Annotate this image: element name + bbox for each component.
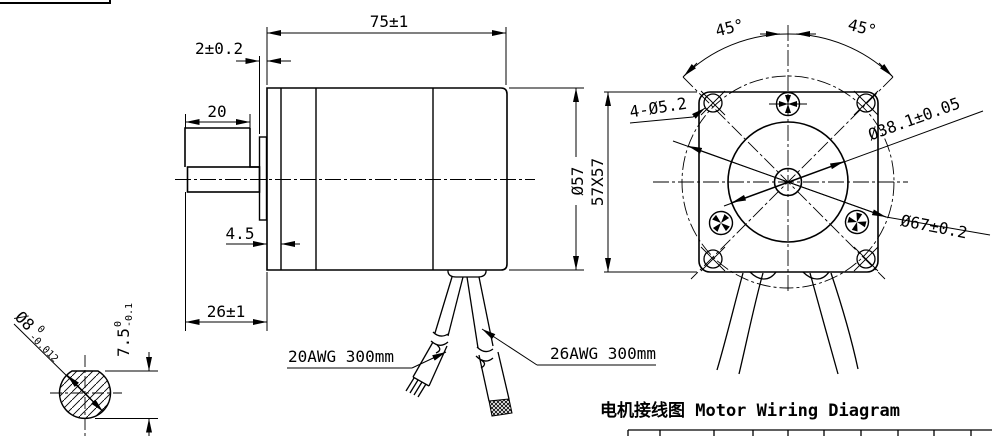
shaft-boss-right (250, 128, 260, 167)
dim-face-size: 57X57 (588, 158, 607, 206)
shaft-boss (185, 128, 250, 167)
dim-mounting-holes: 4-Ø5.2 (628, 94, 688, 122)
motor-body-outline (267, 88, 507, 270)
shaft-diameter-tol-lower: -0.012 (27, 331, 60, 364)
wire-bundle-right (467, 277, 512, 416)
dim-length-75: 75±1 (370, 12, 409, 31)
dim-front-section-26: 26±1 (207, 302, 246, 321)
pilot-boss (260, 137, 267, 220)
dim-angle-right: 45° (846, 15, 879, 40)
shaft-flat-tol-upper: 0 (113, 321, 124, 327)
dim-pilot-height-2: 2±0.2 (195, 39, 243, 58)
shaft (188, 167, 260, 192)
dim-body-diameter-57: Ø57 (568, 167, 587, 196)
screw-lower-left (705, 207, 737, 239)
shaft-flat-tol-lower: -0.1 (124, 303, 135, 327)
wiring-diagram-title: 电机接线图 Motor Wiring Diagram (600, 400, 900, 421)
dim-shaft-length-20: 20 (207, 102, 226, 121)
dim-bolt-circle: Ø67±0.2 (899, 211, 969, 243)
wire-bundle-left (406, 277, 463, 397)
side-view (175, 88, 535, 416)
shaft-flat-text: 7.5 (114, 328, 133, 357)
wiring-table-top (628, 430, 992, 436)
dim-flange-thickness-45: 4.5 (226, 224, 255, 243)
border-fragment (0, 0, 110, 3)
shaft-flat-label: 7.5 0 -0.1 (113, 303, 135, 357)
screw-lower-right (843, 208, 871, 236)
dim-angle-left: 45° (713, 15, 746, 40)
side-view-dimensions (186, 27, 585, 331)
wire-label-right: 26AWG 300mm (550, 344, 656, 363)
shaft-diameter-label: Ø8 0 -0.012 (10, 307, 68, 365)
wire-grommet (448, 270, 486, 277)
front-view-dimensions (604, 34, 990, 272)
wire-label-left: 20AWG 300mm (288, 347, 394, 366)
motor-dimension-drawing: 75±1 2±0.2 20 4.5 26±1 Ø57 Ø8 0 -0.012 7… (0, 0, 992, 436)
front-view (653, 25, 908, 374)
wire-tip-hatched (489, 399, 512, 416)
screw-top (769, 93, 807, 116)
front-wires (717, 272, 858, 374)
drawing-svg: 75±1 2±0.2 20 4.5 26±1 Ø57 Ø8 0 -0.012 7… (0, 0, 992, 436)
